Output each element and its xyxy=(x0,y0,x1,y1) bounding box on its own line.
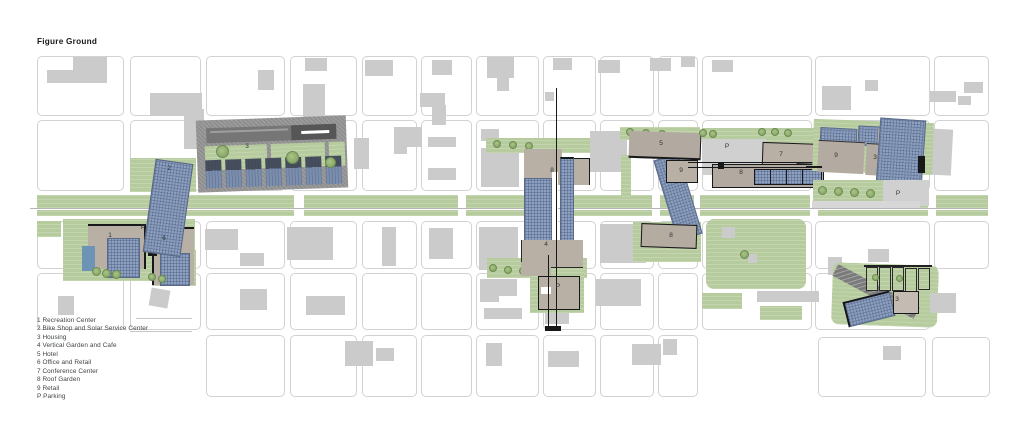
context-building xyxy=(964,82,983,93)
solar-band-narrow xyxy=(560,157,574,243)
corridor-band xyxy=(936,195,988,208)
tree xyxy=(92,267,101,276)
context-building xyxy=(553,58,572,70)
corridor-band xyxy=(936,210,988,216)
context-building xyxy=(663,339,677,355)
context-building xyxy=(432,60,452,75)
legend-name: Office and Retail xyxy=(42,359,91,366)
legend-item: 8 Roof Garden xyxy=(37,376,148,384)
city-block xyxy=(206,335,285,397)
city-block xyxy=(421,273,472,330)
green-area xyxy=(760,306,802,320)
context-building xyxy=(428,137,456,147)
housing-cell xyxy=(918,268,930,290)
page-title: Figure Ground xyxy=(37,37,97,46)
city-block xyxy=(362,273,417,330)
context-building xyxy=(930,91,956,102)
housing-unit xyxy=(265,158,282,187)
context-building xyxy=(149,287,171,308)
solar-tower-east xyxy=(876,117,926,186)
figure-ground-site-plan: 2 3 1 P 6 8 4 P 5 9 8 P 7 8 9 3 P 3 Figu… xyxy=(0,0,1024,431)
corridor-band xyxy=(700,210,810,216)
context-building xyxy=(486,343,502,366)
corridor-band xyxy=(700,195,810,208)
corridor-band xyxy=(818,210,928,216)
context-building xyxy=(497,78,509,91)
building-retail-east xyxy=(817,140,865,174)
legend-name: Roof Garden xyxy=(42,376,80,383)
context-building xyxy=(305,58,327,71)
building-label-parking-station: P xyxy=(556,284,560,291)
housing-cell xyxy=(905,268,917,292)
legend-key: 7 xyxy=(37,368,41,375)
tree xyxy=(504,266,512,274)
legend-name: Vertical Garden and Cafe xyxy=(42,342,116,349)
housing-cell xyxy=(879,267,891,291)
legend-item: P Parking xyxy=(37,393,148,401)
legend-name: Recreation Center xyxy=(42,317,96,324)
tree xyxy=(489,264,497,272)
context-building xyxy=(382,227,396,266)
context-building xyxy=(484,308,522,319)
building-label-retail-center: 9 xyxy=(679,168,683,175)
context-building xyxy=(868,249,889,262)
band-gap xyxy=(552,172,558,242)
section-line xyxy=(548,255,549,327)
tree xyxy=(158,275,166,283)
context-building xyxy=(822,86,851,110)
legend-name: Conference Center xyxy=(42,368,98,375)
legend-item: 7 Conference Center xyxy=(37,368,148,376)
panel-divider xyxy=(770,170,771,184)
context-building xyxy=(365,60,393,76)
legend-key: 9 xyxy=(37,385,41,392)
housing-unit xyxy=(205,160,222,189)
building-label-conference: 7 xyxy=(779,152,783,159)
building-vertical-garden-cafe-wing xyxy=(521,262,551,276)
solar-band-roof-garden-east xyxy=(754,169,822,185)
section-tick xyxy=(918,156,925,173)
building-label-housing-se: 3 xyxy=(895,297,899,304)
tree xyxy=(740,250,749,259)
context-building xyxy=(428,168,456,180)
context-building xyxy=(596,279,641,306)
park-pavilion xyxy=(722,227,735,238)
context-building xyxy=(757,291,819,302)
context-building xyxy=(930,293,956,313)
context-building xyxy=(345,341,373,366)
context-building xyxy=(681,57,695,67)
tree xyxy=(509,141,517,149)
legend-name: Retail xyxy=(42,385,59,392)
panel-divider xyxy=(786,170,787,184)
city-block xyxy=(818,337,926,397)
context-building xyxy=(354,138,369,169)
tree xyxy=(834,187,843,196)
housing-unit xyxy=(225,159,242,188)
context-building xyxy=(958,96,971,105)
context-building xyxy=(480,294,499,302)
paved-strip xyxy=(812,201,920,208)
tree xyxy=(866,189,875,198)
context-building xyxy=(429,228,453,259)
building-label-bike-shop: 2 xyxy=(167,166,171,173)
tree xyxy=(216,145,229,158)
legend-item: 1 Recreation Center xyxy=(37,317,148,325)
legend-item: 4 Vertical Garden and Cafe xyxy=(37,342,148,350)
green-area xyxy=(37,221,61,237)
tree xyxy=(758,128,766,136)
section-line xyxy=(556,88,557,328)
context-building xyxy=(883,346,901,360)
tree xyxy=(818,186,827,195)
building-label-roof-garden-s: 8 xyxy=(669,233,673,240)
solar-band-wide xyxy=(524,178,552,242)
city-block xyxy=(421,335,472,397)
context-building xyxy=(545,92,554,101)
park-pavilion xyxy=(748,254,757,263)
section-line-cap xyxy=(545,326,561,331)
building-hotel xyxy=(629,131,702,160)
legend-key: 6 xyxy=(37,359,41,366)
tree xyxy=(112,270,121,279)
legend-key: 1 xyxy=(37,317,41,324)
green-area xyxy=(702,293,742,309)
context-building xyxy=(487,57,514,78)
context-building xyxy=(205,229,238,250)
context-building xyxy=(258,70,274,90)
context-building xyxy=(632,344,661,365)
panel-divider xyxy=(802,170,803,184)
legend-name: Hotel xyxy=(42,351,57,358)
context-building xyxy=(58,296,74,315)
legend-key: P xyxy=(37,393,41,400)
skybridge-line xyxy=(688,167,815,168)
legend-item: 6 Office and Retail xyxy=(37,359,148,367)
legend-item: 2 Bike Shop and Solar Service Center xyxy=(37,325,148,333)
context-building xyxy=(306,296,345,315)
building-label-retail-east: 9 xyxy=(834,153,838,160)
context-building xyxy=(394,143,407,154)
context-building xyxy=(548,351,579,367)
legend-key: 3 xyxy=(37,334,41,341)
tree xyxy=(872,274,879,281)
building-label-housing-east: 3 xyxy=(873,155,877,162)
city-block xyxy=(37,120,124,191)
city-block xyxy=(421,120,472,191)
housing-unit xyxy=(245,158,262,187)
building-label-office-retail: 6 xyxy=(162,236,166,243)
legend-key: 4 xyxy=(37,342,41,349)
building-label-roof-garden-e: 8 xyxy=(739,170,743,177)
legend-item: 5 Hotel xyxy=(37,351,148,359)
green-area xyxy=(621,155,631,197)
context-building xyxy=(712,60,733,72)
context-building xyxy=(598,60,620,73)
context-building xyxy=(47,70,82,83)
tree xyxy=(784,129,792,137)
context-building xyxy=(240,289,267,310)
tree xyxy=(850,188,859,197)
tree xyxy=(896,275,903,282)
corridor-band xyxy=(304,210,458,216)
context-building xyxy=(481,148,519,187)
context-building xyxy=(303,84,325,117)
tree xyxy=(493,140,501,148)
legend-name: Housing xyxy=(42,334,66,341)
tree xyxy=(709,130,717,138)
tree xyxy=(148,273,156,281)
skybridge-line xyxy=(806,166,822,168)
building-label-hotel: 5 xyxy=(659,141,663,148)
legend-item: 3 Housing xyxy=(37,334,148,342)
context-building xyxy=(287,227,333,260)
legend-key: 2 xyxy=(37,325,41,332)
skybridge-line xyxy=(688,162,815,163)
context-building xyxy=(865,80,878,91)
building-label-roof-garden-n: 8 xyxy=(550,168,554,175)
legend-item: 9 Retail xyxy=(37,385,148,393)
city-block xyxy=(934,221,989,269)
building-label-parking-east: P xyxy=(896,191,900,198)
city-block xyxy=(658,273,698,330)
city-block xyxy=(932,337,990,397)
context-building xyxy=(240,253,264,266)
tree xyxy=(771,128,779,136)
tree xyxy=(699,129,707,137)
building-label-housing-north: 3 xyxy=(245,144,249,151)
context-building xyxy=(650,58,671,71)
building-label-parking-west: P xyxy=(141,225,145,232)
building-label-parking-mid: P xyxy=(725,144,729,151)
housing-unit xyxy=(305,156,322,185)
legend: 1 Recreation Center 2 Bike Shop and Sola… xyxy=(37,317,148,402)
context-building xyxy=(376,348,394,361)
building-label-vertical-garden: 4 xyxy=(544,242,548,249)
tree xyxy=(325,157,336,168)
corridor-band xyxy=(304,195,458,208)
building-label-recreation: 1 xyxy=(108,233,112,240)
tree xyxy=(102,269,111,278)
context-building xyxy=(432,105,446,125)
legend-key: 8 xyxy=(37,376,41,383)
building-notch xyxy=(541,287,551,294)
tree xyxy=(286,151,299,164)
legend-key: 5 xyxy=(37,351,41,358)
legend-name: Bike Shop and Solar Service Center xyxy=(42,325,148,332)
legend-name: Parking xyxy=(43,393,65,400)
